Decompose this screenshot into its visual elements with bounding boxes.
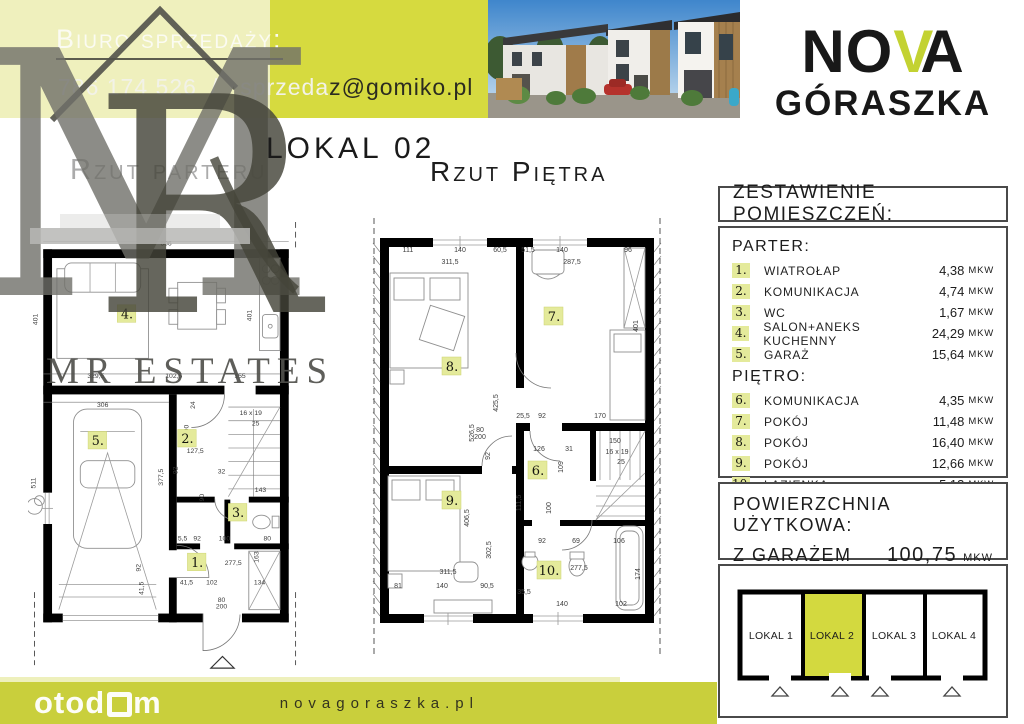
room-badge-2: 2. [178,429,197,447]
entrance-marker [211,656,234,668]
ground-floor-plan: 606401401329,5102,5155306377,55112410016… [28,222,304,672]
dimension-label: 111 [403,247,414,254]
dimension-label: 174 [635,568,642,580]
dimension-label: 92 [538,413,546,420]
website-url[interactable]: novagoraszka.pl [280,695,599,712]
living-room-furniture [57,263,226,358]
unit-selector: LOKAL 1 LOKAL 2 LOKAL 3 LOKAL 4 [718,564,1008,718]
dimension-label: 155 [234,373,246,380]
first-floor-title: Rzut Piętra [430,156,607,188]
room-area: 11,48 [933,414,965,429]
dimension-label: 80 [476,427,484,434]
room-table-title: ZESTAWIENIE POMIESZCZEŃ: [733,182,1006,226]
room-area: 1,67 [939,305,964,320]
room-area: 4,35 [939,393,964,408]
dimension-label: 92 [193,536,201,543]
dimension-label: 106 [613,538,625,545]
garage-door [63,616,158,621]
room-badge-4: 4. [117,305,136,323]
dimension-label: 401 [247,310,254,322]
brand-logo: NOVA GÓRASZKA [758,20,1008,170]
dimension-label: 96 [624,247,632,254]
dimension-label: 100 [546,502,553,514]
room-number-badge: 4. [732,326,749,341]
dimension-label: 25 [617,459,625,466]
dimension-label: 102 [206,579,218,586]
dimension-label: 25,5 [516,413,530,420]
dimension-label: 140 [436,583,448,590]
dimension-label: 126 [533,446,545,453]
dimension-label: 92 [136,564,143,572]
room-area: 15,64 [932,347,965,362]
ground-floor-title: Rzut parteru [70,154,268,187]
room-area: 24,29 [932,326,965,341]
dimension-label: 100 [219,536,231,543]
room-number-badge: 8. [732,435,750,450]
total-area-unit: MKW [963,552,993,564]
otodom-logo[interactable]: otodm [34,685,162,721]
table-row: 1. WIATROŁAP 4,38 MKW [732,260,994,281]
svg-text:10.: 10. [539,564,560,579]
dimension-label: 134 [254,579,266,586]
window-left [42,493,53,524]
dimension-labels: 606401401329,5102,5155306377,55112410016… [30,240,271,610]
dimension-label: 163 [254,551,261,563]
room-name: POKÓJ [764,457,809,471]
dimension-label: 16 x 19 [240,410,263,417]
room-area-unit: MKW [968,286,994,297]
dimension-label: 306 [97,402,109,409]
room-name: GARAŻ [764,348,809,362]
room-number-badge: 7. [732,414,750,429]
dimension-label: 511 [30,477,37,488]
unit-selector-diagram: LOKAL 1 LOKAL 2 LOKAL 3 LOKAL 4 [720,566,1006,716]
exterior-plant [28,496,44,515]
first-floor-plan: 11114060,5311,551,514096287,5425,5526,54… [372,218,662,658]
usable-area-label: POWIERZCHNIA UŻYTKOWA: [733,494,993,536]
wc-fixtures [253,515,279,529]
dimension-label: 92 [173,466,180,474]
dimension-label: 200 [216,604,228,611]
dimension-label: 16 x 19 [606,449,629,456]
window-bottom-left [424,612,473,625]
dimension-label: 401 [32,314,39,326]
dimension-label: 102 [615,601,627,608]
email-address[interactable]: sprzedaz@gomiko.pl [240,74,473,100]
brand-subtitle: GÓRASZKA [758,84,1008,124]
dimension-label: 32 [218,468,226,475]
phone-number[interactable]: 786 174 526 [58,74,197,100]
table-row: 4. SALON+ANEKS KUCHENNY 24,29 MKW [732,323,994,344]
dimension-label: 140 [454,247,466,254]
unit-cell-lokal2[interactable]: LOKAL 2 [810,630,854,642]
room-badge-8: 8. [442,357,461,375]
room-badge-10: 10. [537,561,561,579]
svg-text:6.: 6. [532,464,544,479]
dimension-label: 143 [255,487,267,494]
room-badge-5: 5. [88,431,107,449]
room-area: 4,74 [939,284,964,299]
svg-text:5.: 5. [92,433,104,448]
room-area-unit: MKW [968,328,994,339]
kitchen-annex [260,258,280,351]
unit-title: LOKAL 02 [266,132,435,166]
dimension-label: 277,5 [225,560,242,567]
svg-text:7.: 7. [548,310,560,325]
table-row: 9. POKÓJ 12,66 MKW [732,453,994,474]
room-table: PARTER: 1. WIATROŁAP 4,38 MKW 2. KOMUNIK… [718,226,1008,478]
dimension-label: 140 [556,601,568,608]
dimension-label: 606 [160,240,172,247]
room-name: SALON+ANEKS KUCHENNY [763,320,932,348]
dimension-label: 90,5 [480,583,494,590]
bedroom-9-furniture [388,476,492,613]
room-badge-1: 1. [187,553,206,571]
dimension-label: 170 [594,413,606,420]
room-area: 16,40 [932,435,965,450]
room-area-unit: MKW [968,437,994,448]
dimension-label: 41,5 [180,579,193,586]
room-number-badge: 1. [732,263,750,278]
dimension-label: 287,5 [563,259,581,266]
dimension-label: 406,5 [464,509,471,527]
section-parter: PARTER: [732,238,994,256]
unit-divider [862,592,866,678]
dimension-label: 92 [485,452,492,460]
separator-slash: / [211,74,218,100]
room-area-unit: MKW [968,458,994,469]
area-summary: POWIERZCHNIA UŻYTKOWA: Z GARAŻEM 100,75 … [718,482,1008,560]
room-area-unit: MKW [968,265,994,276]
table-row: 8. POKÓJ 16,40 MKW [732,432,994,453]
room-badge-9: 9. [442,491,461,509]
blue-scooter [729,88,739,106]
dimension-label: 200 [474,434,486,441]
table-row: 7. POKÓJ 11,48 MKW [732,411,994,432]
contact-line: 786 174 526/sprzedaz@gomiko.pl [58,74,473,101]
unit-cell-lokal3[interactable]: LOKAL 3 [872,630,916,642]
wooden-fence [496,78,522,100]
dimension-label: 140 [556,247,568,254]
dimension-label: 329,5 [87,373,104,380]
dimension-label: 35,5 [517,589,531,596]
dimension-label: 277,5 [570,565,588,572]
house-render-photo [488,0,740,118]
garage-car [59,409,156,610]
dimension-label: 80 [264,536,272,543]
dimension-label: 69 [572,538,580,545]
room-number-badge: 5. [732,347,750,362]
footer-bar: otodm novagoraszka.pl [0,682,717,724]
dimension-label: 81 [394,583,402,590]
room-name: WIATROŁAP [764,264,841,278]
dimension-label: 102,5 [165,373,182,380]
contact-block: Biuro sprzedaży: 786 174 526/sprzedaz@go… [0,0,490,118]
svg-text:9.: 9. [446,494,458,509]
brand-name: NOVA [758,20,1008,84]
room-area-unit: MKW [968,416,994,427]
table-row: 6. KOMUNIKACJA 4,35 MKW [732,390,994,411]
section-pietro: PIĘTRO: [732,368,994,386]
room-name: WC [764,306,786,320]
room-number-badge: 9. [732,456,750,471]
entrance-markers [772,687,960,696]
dimension-label: 311,5 [440,569,457,576]
bedroom-7-furniture [532,248,645,420]
dimension-label: 31 [565,446,573,453]
table-row: 2. KOMUNIKACJA 4,74 MKW [732,281,994,302]
unit-cell-lokal1[interactable]: LOKAL 1 [749,630,793,642]
dimension-label: 24 [190,401,197,409]
otodom-square-o-icon [107,692,132,717]
room-area: 4,38 [939,263,964,278]
room-name: KOMUNIKACJA [764,394,859,408]
dimension-label: 60,5 [493,247,507,254]
dimension-label: 51,5 [521,247,535,254]
unit-divider [801,592,805,678]
dimension-label: 111,5 [516,495,523,512]
svg-text:3.: 3. [232,505,244,520]
room-number-badge: 2. [732,284,750,299]
room-number-badge: 6. [732,393,750,408]
room-area-unit: MKW [968,349,994,360]
svg-text:1.: 1. [191,555,203,570]
room-area: 12,66 [932,456,965,471]
dimension-label: 5,5 [178,536,188,543]
dimension-label: 377,5 [158,468,165,485]
unit-cell-lokal4[interactable]: LOKAL 4 [932,630,976,642]
with-garage-label: Z GARAŻEM [733,545,852,566]
dimension-label: 90 [199,494,206,502]
dimension-label: 109 [558,461,565,473]
room-badge-6: 6. [528,461,547,479]
dimension-label: 92 [538,538,546,545]
dimension-label: 302,5 [486,541,493,559]
room-name: POKÓJ [764,436,809,450]
room-badge-3: 3. [228,503,247,521]
dimension-label: 311,5 [442,259,459,266]
dimension-label: 425,5 [493,394,500,412]
dimension-label: 127,5 [187,448,204,455]
svg-text:2.: 2. [181,431,193,446]
room-area-unit: MKW [968,307,994,318]
dimension-label: 25 [252,421,260,428]
window-bottom-right [533,612,583,625]
unit-divider [923,592,927,678]
room-badge-7: 7. [544,307,563,325]
dimension-label: 401 [633,320,640,332]
dimension-label: 150 [609,438,621,445]
svg-text:8.: 8. [446,360,458,375]
room-name: KOMUNIKACJA [764,285,859,299]
room-table-header: ZESTAWIENIE POMIESZCZEŃ: [718,186,1008,222]
room-area-unit: MKW [968,395,994,406]
room-name: POKÓJ [764,415,809,429]
flyer-page: Biuro sprzedaży: 786 174 526/sprzedaz@go… [0,0,1024,724]
svg-text:4.: 4. [121,306,133,321]
sales-office-title: Biuro sprzedaży: [56,24,283,60]
dimension-label: 41,5 [139,581,146,594]
room-number-badge: 3. [732,305,750,320]
